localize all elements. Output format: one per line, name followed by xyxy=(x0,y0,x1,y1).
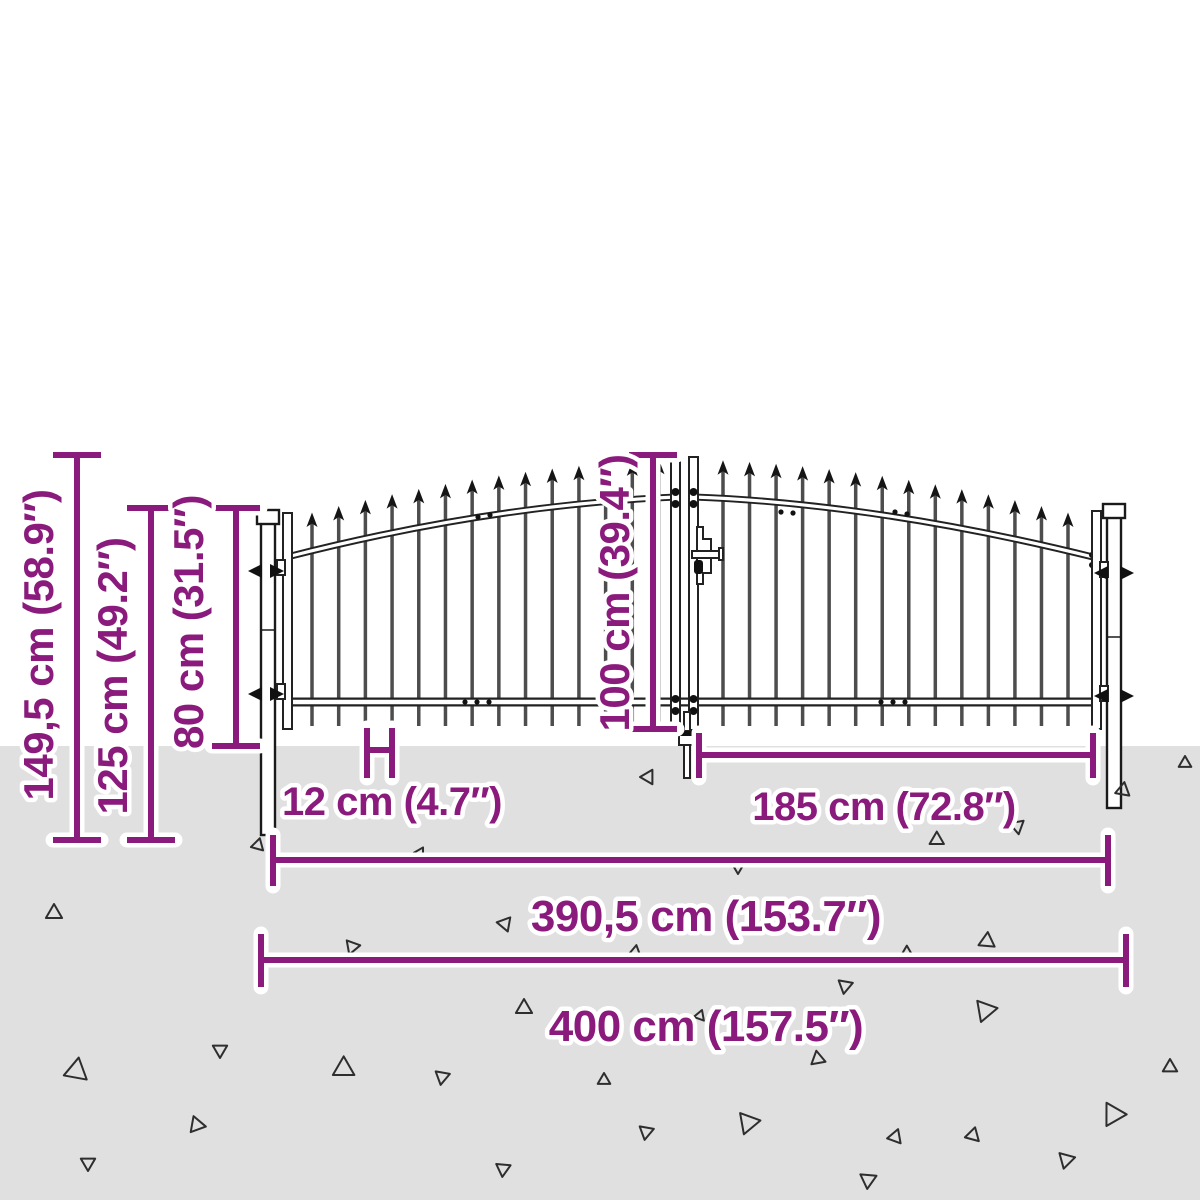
left-post xyxy=(257,510,279,835)
left-leaf-center-stile xyxy=(671,457,680,730)
hinge-icon xyxy=(1120,566,1134,580)
gate-diagram-svg: 149,5 cm (58.9″) 125 cm (49.2″) 80 cm (3… xyxy=(0,0,1200,1200)
dimension-label-80: 80 cm (31.5″) xyxy=(165,495,212,749)
arched-top-rail-right xyxy=(694,497,1097,558)
right-post xyxy=(1103,504,1125,808)
dimension-label-100: 100 cm (39.4″) xyxy=(591,455,638,732)
dimension-label-149-5: 149,5 cm (58.9″) xyxy=(15,490,62,801)
hinge-icon xyxy=(248,687,262,701)
hinge-icon xyxy=(248,564,262,578)
dimension-label-125: 125 cm (49.2″) xyxy=(89,538,136,815)
dimension-height-80: 80 cm (31.5″) xyxy=(165,495,260,749)
dimension-label-185: 185 cm (72.8″) xyxy=(752,785,1015,829)
dimension-label-12: 12 cm (4.7″) xyxy=(282,780,502,824)
right-leaf-center-stile xyxy=(689,457,698,730)
hinge-icon xyxy=(1120,689,1134,703)
keyhole-icon xyxy=(694,560,703,574)
gate-lock xyxy=(692,527,723,584)
ground xyxy=(0,746,1200,1200)
dimension-label-390-5: 390,5 cm (153.7″) xyxy=(531,892,881,941)
dimension-label-400: 400 cm (157.5″) xyxy=(549,1002,863,1051)
product-diagram: 149,5 cm (58.9″) 125 cm (49.2″) 80 cm (3… xyxy=(0,0,1200,1200)
